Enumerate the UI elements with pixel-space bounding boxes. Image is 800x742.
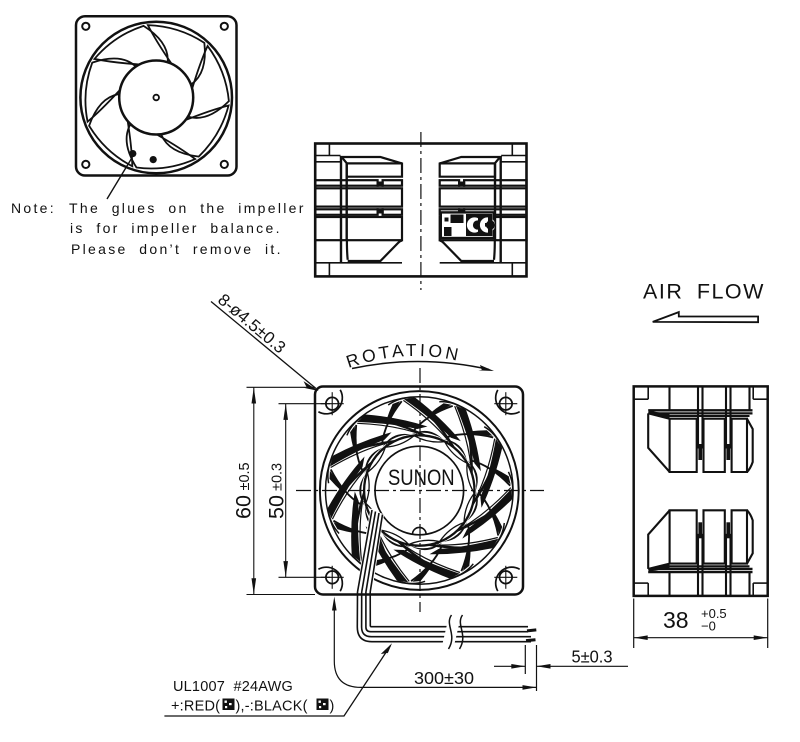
svg-text:60: 60 [232,495,256,519]
svg-text:ROTATION: ROTATION [344,340,464,372]
svg-text:UL1007 #24AWG: UL1007 #24AWG [173,679,293,695]
svg-text:38: 38 [663,607,689,633]
svg-text:): ) [330,699,335,715]
svg-text:AIR FLOW: AIR FLOW [643,280,765,304]
svg-text:SUNON: SUNON [388,465,455,490]
svg-text:300±30: 300±30 [414,668,474,688]
svg-text:is for impeller balance.: is for impeller balance. [70,220,282,236]
svg-text:50: 50 [264,495,288,519]
svg-text:±0.3: ±0.3 [270,463,286,491]
svg-text:The glues on the impeller: The glues on the impeller [69,200,306,216]
svg-text:±0.5: ±0.5 [237,462,253,490]
svg-text:),-:BLACK(: ),-:BLACK( [236,699,308,715]
svg-text:5±0.3: 5±0.3 [572,647,613,667]
svg-text:Please don’t remove it.: Please don’t remove it. [71,241,283,257]
svg-text:−0: −0 [701,619,716,634]
svg-text:Note:: Note: [11,200,56,216]
svg-text:8-ø4.5±0.3: 8-ø4.5±0.3 [214,290,289,357]
svg-text:+:RED(: +:RED( [171,699,220,715]
